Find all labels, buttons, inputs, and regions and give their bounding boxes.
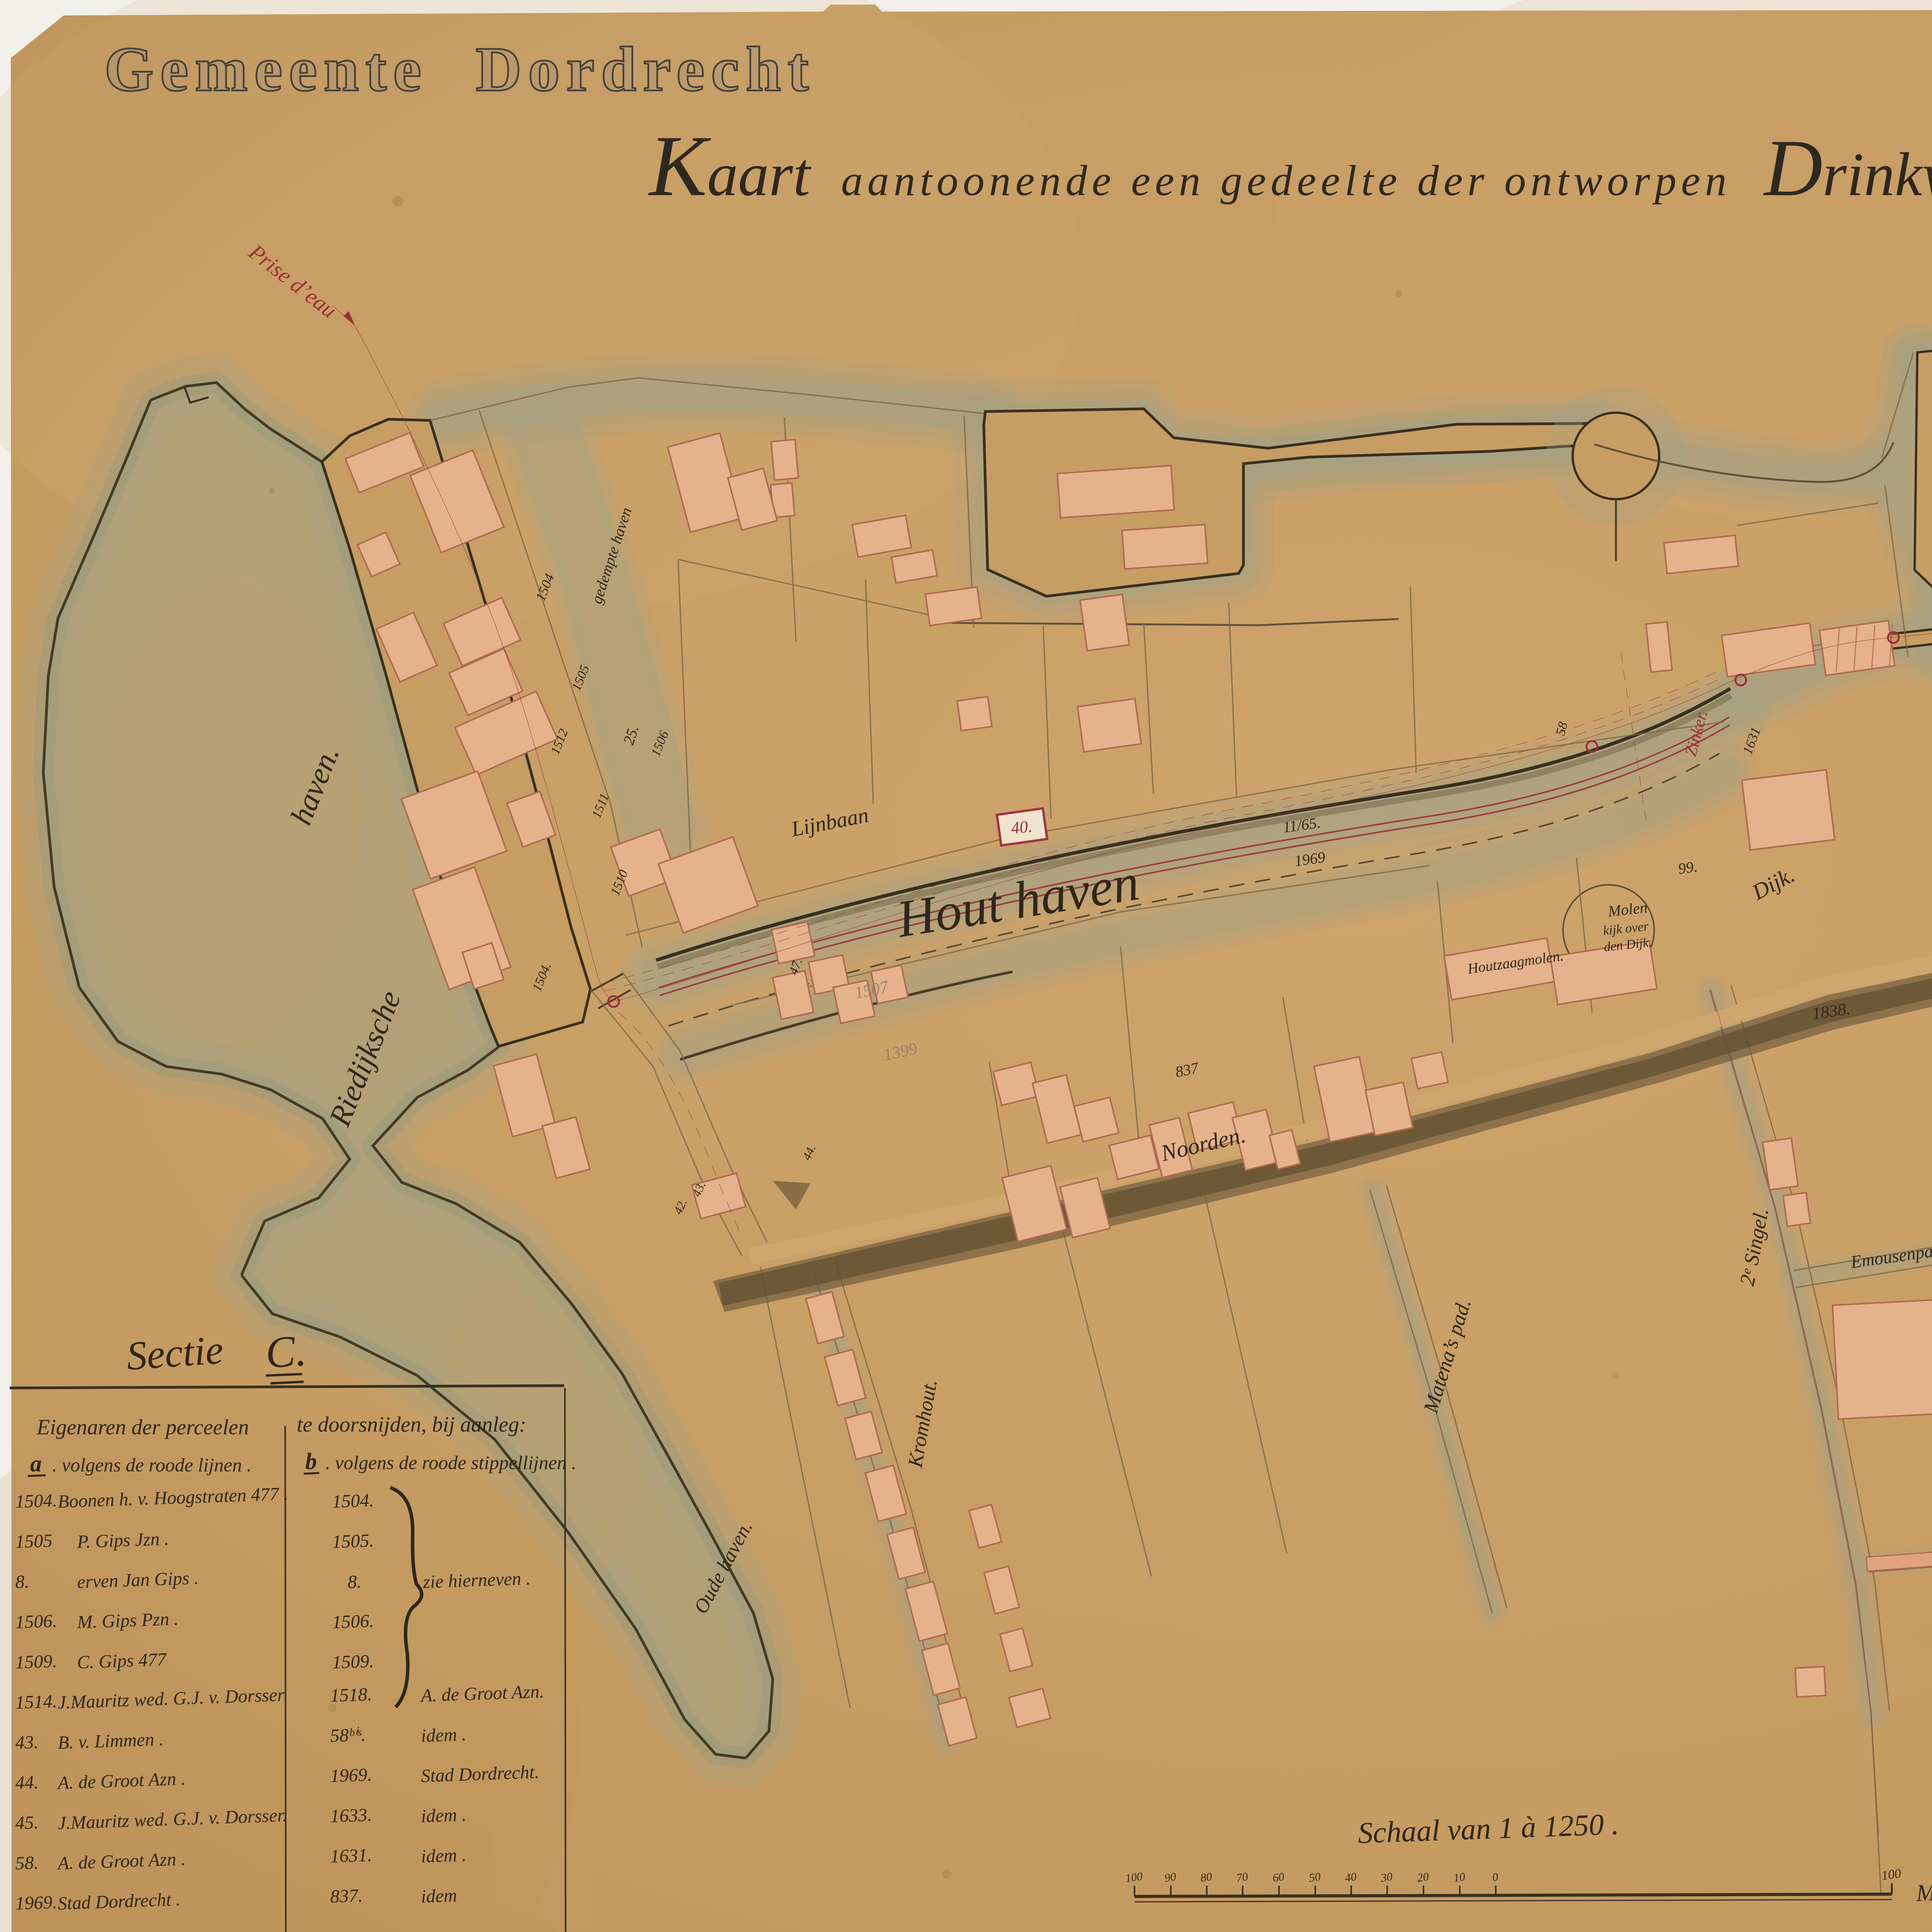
svg-text:20: 20	[1417, 1870, 1430, 1884]
svg-text:te doorsnijden, bij aanleg:: te doorsnijden, bij aanleg:	[297, 1413, 526, 1437]
svg-text:Gemeente Dordrecht: Gemeente Dordrecht	[104, 34, 815, 104]
svg-text:1509.: 1509.	[332, 1651, 374, 1673]
svg-text:erven Jan Gips .: erven Jan Gips .	[77, 1568, 199, 1592]
svg-text:43.: 43.	[15, 1732, 39, 1753]
svg-text:80: 80	[1200, 1870, 1213, 1884]
svg-text:1505.: 1505.	[332, 1530, 374, 1552]
svg-text:1506.: 1506.	[332, 1611, 374, 1633]
svg-text:8.: 8.	[15, 1571, 30, 1592]
svg-text:1969.: 1969.	[330, 1764, 372, 1786]
svg-text:Stad Dordrecht.: Stad Dordrecht.	[421, 1762, 539, 1786]
svg-text:1504.: 1504.	[15, 1490, 58, 1512]
svg-text:C.: C.	[264, 1326, 308, 1378]
svg-text:50: 50	[1308, 1870, 1321, 1884]
svg-text:1631.: 1631.	[330, 1845, 372, 1867]
svg-text:idem .: idem .	[421, 1804, 467, 1827]
svg-text:100: 100	[1124, 1870, 1143, 1885]
svg-text:40.: 40.	[1010, 816, 1033, 837]
svg-text:58ᵇⁱˢ.: 58ᵇⁱˢ.	[330, 1725, 366, 1746]
svg-text:8.: 8.	[347, 1571, 362, 1592]
svg-text:Sectie: Sectie	[125, 1327, 224, 1379]
svg-text:Eigenaren der perceelen: Eigenaren der perceelen	[36, 1415, 249, 1439]
svg-text:B. v. Limmen .: B. v. Limmen .	[58, 1729, 164, 1753]
svg-text:40: 40	[1344, 1870, 1357, 1884]
svg-text:idem: idem	[421, 1885, 457, 1907]
svg-text:zie hierneven .: zie hierneven .	[422, 1568, 531, 1592]
svg-text:99.: 99.	[1677, 857, 1699, 878]
svg-text:idem .: idem .	[421, 1845, 467, 1867]
svg-text:70: 70	[1236, 1870, 1249, 1884]
svg-text:10: 10	[1453, 1870, 1466, 1884]
svg-text:. volgens de roode stippellijn: . volgens de roode stippellijnen .	[325, 1452, 576, 1473]
svg-text:a: a	[30, 1451, 42, 1476]
svg-text:45.: 45.	[15, 1812, 39, 1833]
svg-text:1506.: 1506.	[15, 1611, 58, 1633]
svg-text:1969.: 1969.	[15, 1892, 58, 1914]
svg-text:idem .: idem .	[421, 1724, 467, 1746]
svg-text:. volgens de roode lijnen .: . volgens de roode lijnen .	[52, 1454, 252, 1476]
svg-text:44.: 44.	[15, 1772, 39, 1793]
svg-text:1504.: 1504.	[332, 1490, 374, 1512]
svg-text:90: 90	[1164, 1870, 1177, 1884]
svg-text:C. Gips 477: C. Gips 477	[77, 1649, 167, 1673]
svg-text:A. de Groot Azn.: A. de Groot Azn.	[420, 1681, 544, 1706]
svg-text:1514.: 1514.	[15, 1691, 58, 1713]
svg-text:Stad Dordrecht .: Stad Dordrecht .	[58, 1889, 181, 1914]
svg-text:30: 30	[1380, 1870, 1393, 1884]
svg-text:1518.: 1518.	[330, 1684, 372, 1706]
svg-text:1633.: 1633.	[330, 1804, 372, 1827]
svg-text:60: 60	[1272, 1870, 1285, 1884]
svg-text:100: 100	[1881, 1866, 1902, 1883]
svg-text:1509.: 1509.	[15, 1651, 58, 1673]
svg-text:Meters .: Meters .	[1915, 1876, 1932, 1906]
svg-text:58.: 58.	[15, 1852, 39, 1874]
svg-text:M. Gips Pzn .: M. Gips Pzn .	[77, 1609, 179, 1633]
svg-text:837.: 837.	[330, 1885, 363, 1907]
svg-text:1505: 1505	[15, 1531, 53, 1552]
svg-text:b: b	[305, 1449, 317, 1474]
svg-text:P. Gips Jzn .: P. Gips Jzn .	[77, 1529, 170, 1552]
